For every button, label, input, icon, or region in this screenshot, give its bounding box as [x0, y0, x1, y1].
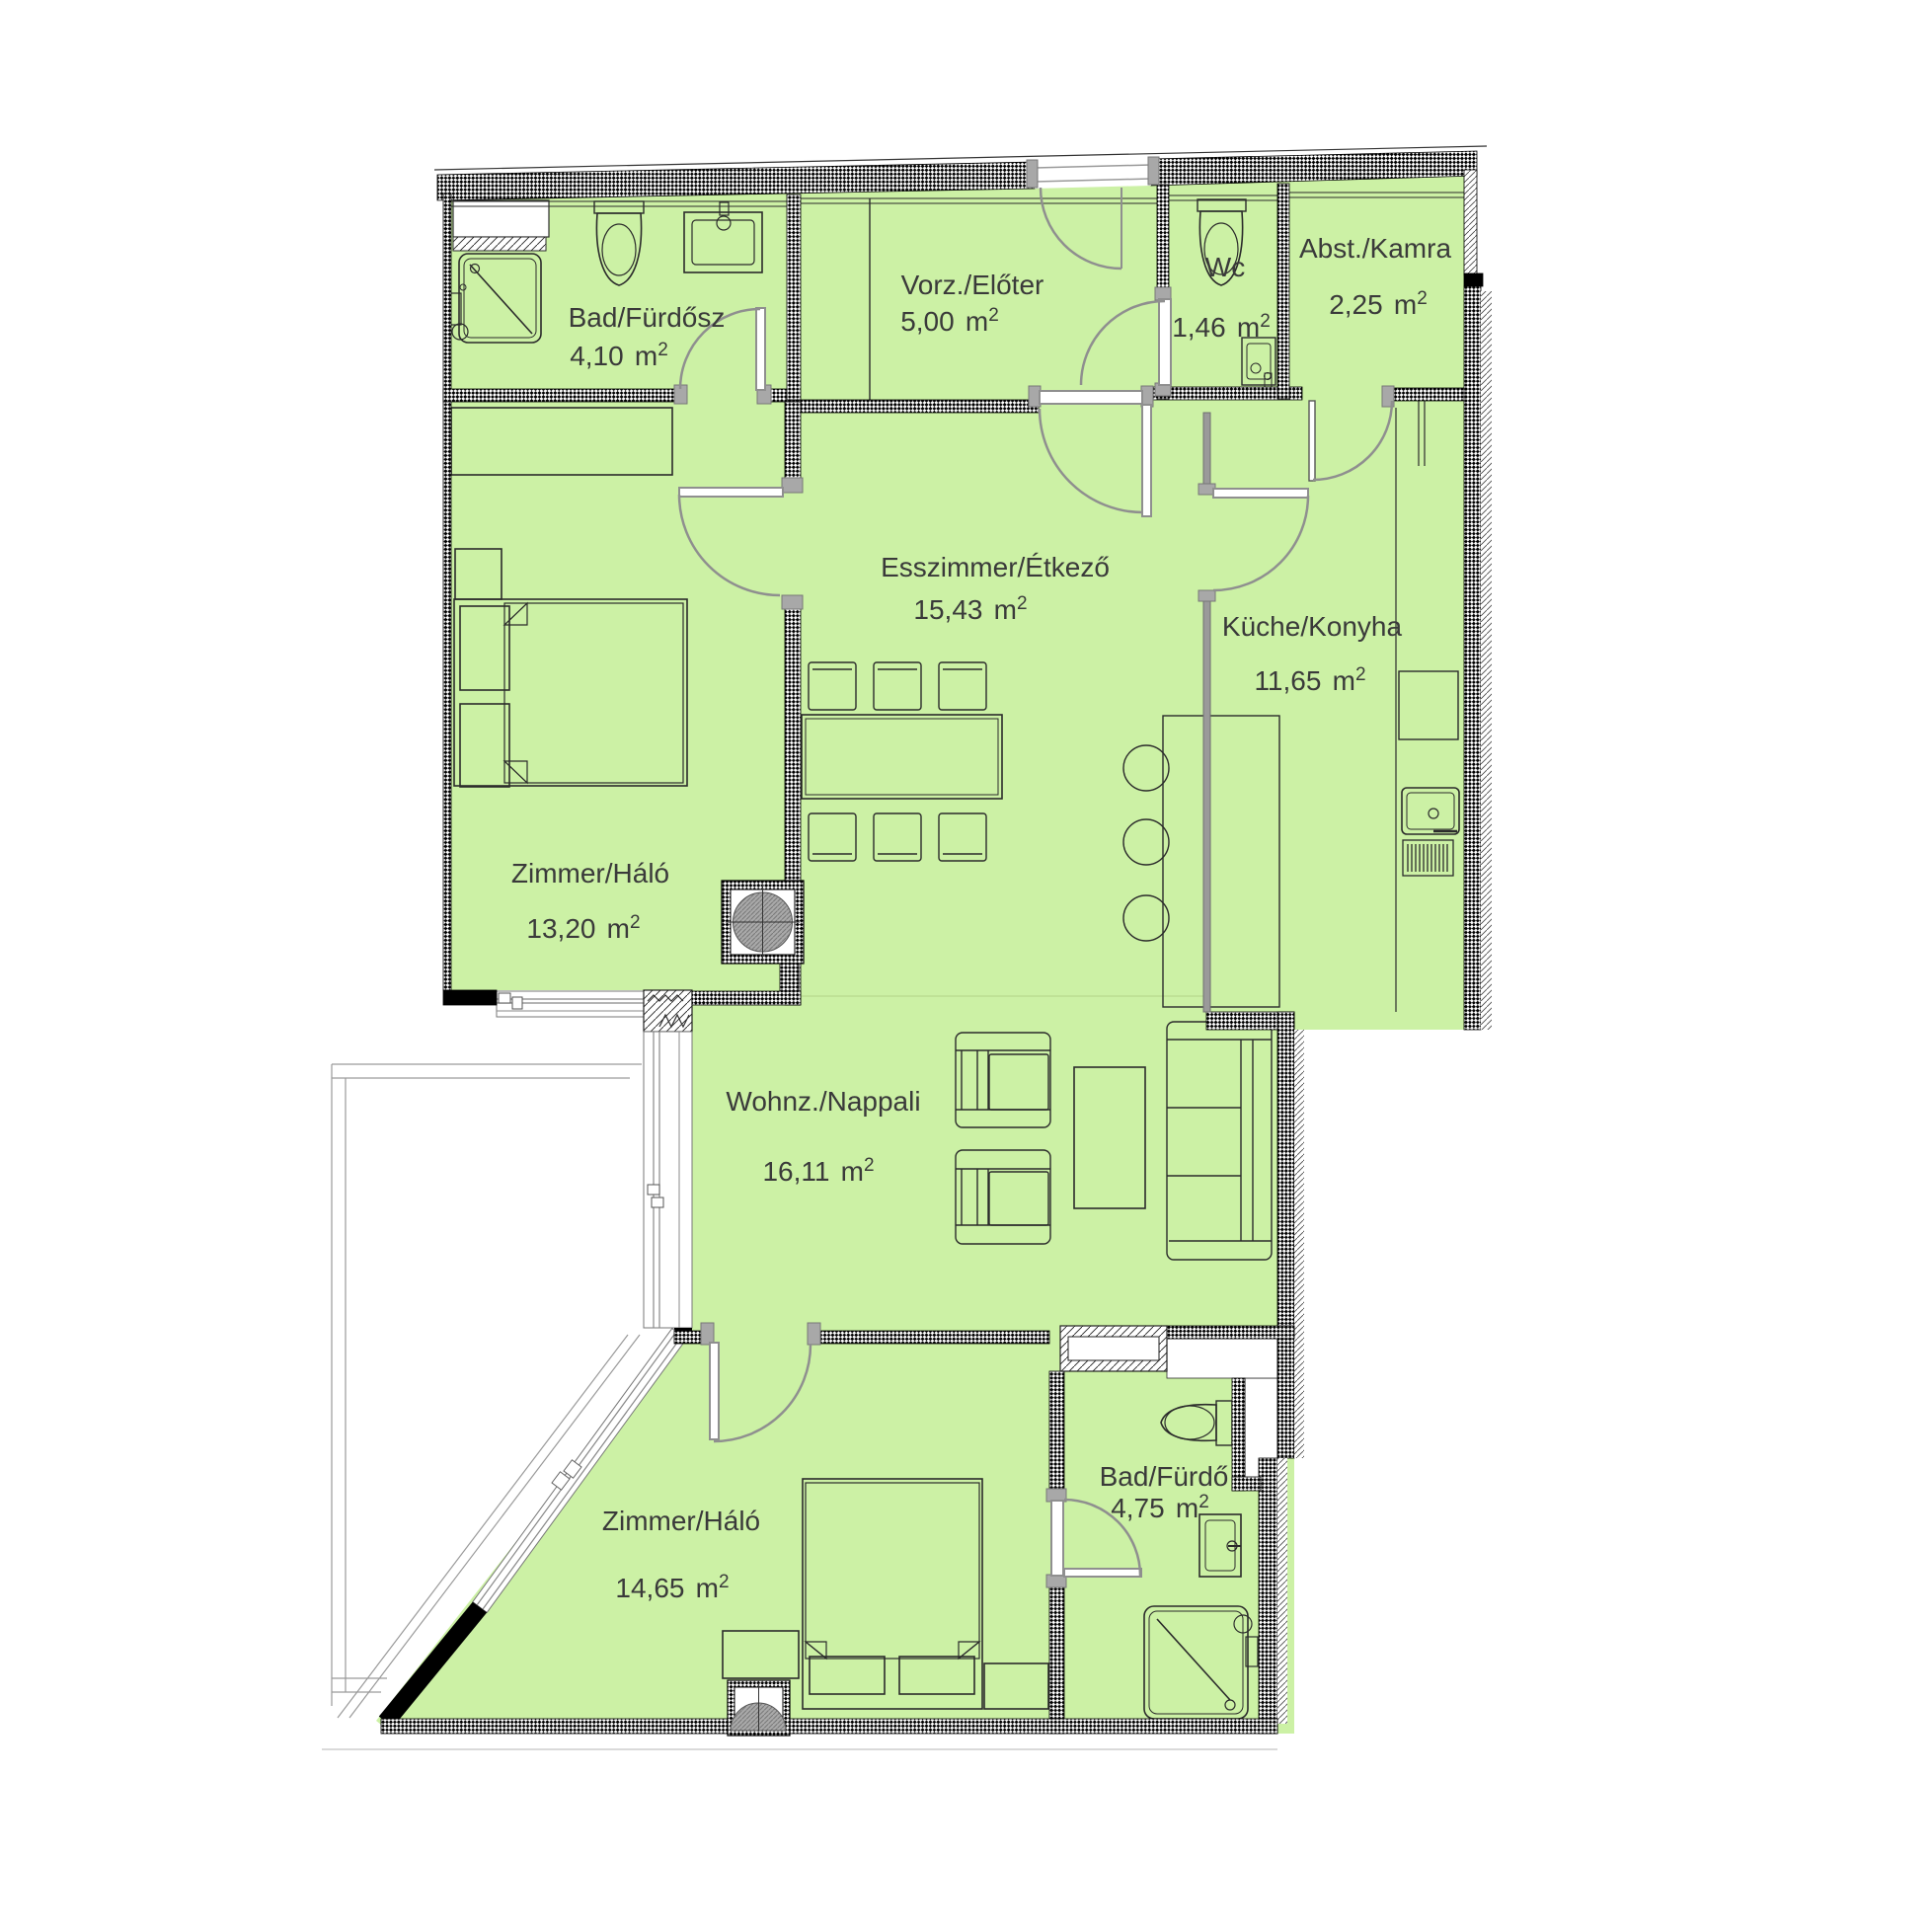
svg-text:Bad/Fürdő: Bad/Fürdő — [1100, 1461, 1229, 1492]
svg-text:Küche/Konyha: Küche/Konyha — [1222, 611, 1403, 642]
svg-text:Bad/Fürdősz: Bad/Fürdősz — [569, 302, 726, 333]
svg-text:Abst./Kamra: Abst./Kamra — [1299, 233, 1451, 264]
svg-text:Vorz./Előter: Vorz./Előter — [901, 270, 1044, 300]
svg-text:2,25 m2: 2,25 m2 — [1329, 288, 1428, 320]
svg-text:Zimmer/Háló: Zimmer/Háló — [511, 858, 669, 889]
svg-text:1,46 m2: 1,46 m2 — [1172, 311, 1271, 343]
svg-text:Esszimmer/Étkező: Esszimmer/Étkező — [881, 552, 1110, 582]
svg-text:13,20 m2: 13,20 m2 — [526, 912, 640, 944]
svg-text:5,00 m2: 5,00 m2 — [900, 305, 999, 337]
svg-text:Wohnz./Nappali: Wohnz./Nappali — [726, 1086, 920, 1117]
svg-text:4,75 m2: 4,75 m2 — [1111, 1492, 1209, 1523]
svg-text:15,43 m2: 15,43 m2 — [913, 593, 1027, 625]
svg-text:11,65 m2: 11,65 m2 — [1254, 664, 1365, 696]
svg-text:14,65 m2: 14,65 m2 — [615, 1572, 729, 1603]
svg-text:Wc: Wc — [1205, 252, 1245, 282]
svg-text:4,10 m2: 4,10 m2 — [570, 340, 668, 371]
svg-text:Zimmer/Háló: Zimmer/Háló — [602, 1506, 760, 1536]
svg-text:16,11 m2: 16,11 m2 — [762, 1155, 874, 1187]
